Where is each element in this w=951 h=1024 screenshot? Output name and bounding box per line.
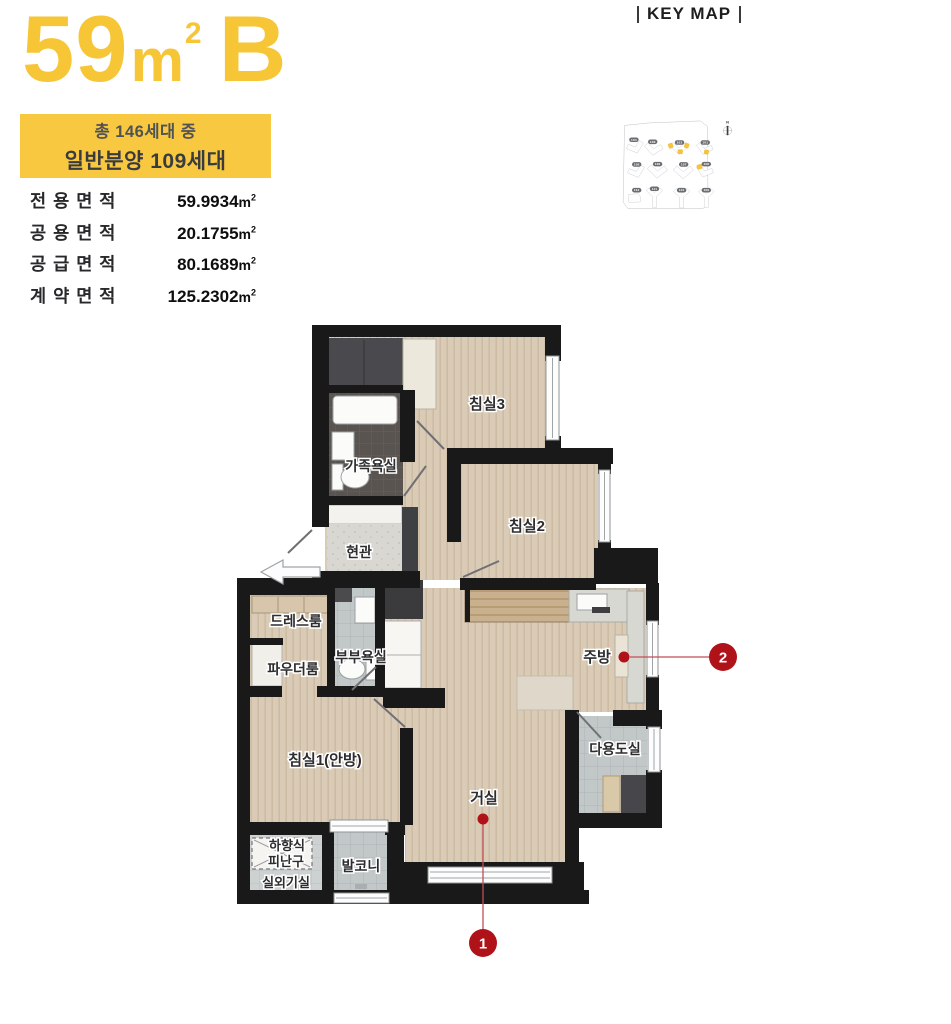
marker-badge-2: 2 [709,643,737,671]
building-label-108: 108 [702,162,711,167]
building-label-103: 103 [648,140,657,145]
area-row-value: 59.9934m2 [177,192,256,212]
keymap-title-text: KEY MAP [647,4,731,24]
svg-text:105: 105 [634,162,640,166]
window [428,867,552,883]
room-label-bedroom1: 침실1(안방) [288,751,362,769]
bathtub [333,396,397,424]
marker-dot-kitchen [619,652,630,663]
svg-text:104: 104 [631,138,637,142]
marker-badge-1: 1 [469,929,497,957]
room-label-living: 거실 [470,790,498,807]
svg-text:2: 2 [719,650,727,667]
page-title: 59m2B [22,2,288,96]
area-table: 전용면적 59.9934m2 공용면적 20.1755m2 공급면적 80.16… [30,188,256,314]
building-label-107: 107 [679,162,688,167]
svg-text:N: N [726,121,729,125]
window [599,470,610,542]
area-unit: m [131,31,185,91]
floor-plan: 침실3 침실2 가족욕실 현관 드레스룸 부부욕실 파우더룸 침실1(안방) 주… [230,318,760,1024]
area-row-value: 80.1689m2 [177,255,256,275]
area-row-value: 20.1755m2 [177,224,256,244]
room-label-hatch-line2: 피난구 [268,854,304,869]
svg-text:112: 112 [634,188,640,192]
compass-icon: N [723,121,732,135]
title-bar-left [637,6,639,23]
cooktop [592,607,610,613]
building-label-102: 102 [675,140,684,145]
entrance-column [402,507,418,573]
window [334,893,389,903]
window [330,820,388,832]
svg-text:110: 110 [679,188,685,192]
svg-text:111: 111 [652,187,657,191]
building-label-110: 110 [677,188,686,193]
svg-text:102: 102 [677,141,683,145]
unit-type-letter: B [219,2,288,96]
utility-dark-unit [621,775,649,813]
area-row-label: 계약면적 [30,283,122,308]
shoe-cabinet [327,505,402,524]
building-label-104: 104 [629,137,638,142]
utility-cabinet [603,776,620,812]
room-label-outdoor-unit: 실외기실 [262,875,310,890]
title-bar-right [739,6,741,23]
building-label-109: 109 [702,188,711,193]
area-row-value: 125.2302m2 [168,287,256,307]
window [546,356,559,440]
table-row: 공급면적 80.1689m2 [30,251,256,283]
svg-text:101: 101 [702,141,708,145]
household-count-badge: 총 146세대 중 일반분양 109세대 [20,114,271,178]
room-label-utility: 다용도실 [589,741,641,757]
svg-text:107: 107 [681,162,687,166]
room-label-bedroom3: 침실3 [469,396,505,413]
table-row: 계약면적 125.2302m2 [30,283,256,315]
badge-total-households: 총 146세대 중 [95,118,197,142]
room-label-master-bath: 부부욕실 [335,649,387,665]
svg-text:109: 109 [703,188,709,192]
building-label-101: 101 [701,140,710,145]
marker-dot-living [478,814,489,825]
window [647,621,658,677]
kitchen-island [465,588,569,622]
table-row: 전용면적 59.9934m2 [30,188,256,220]
room-label-entrance: 현관 [346,544,372,560]
room-label-hatch-line1: 하향식 [269,838,305,853]
room-label-dressroom: 드레스룸 [270,613,322,629]
kitchen-counter-side [627,591,644,703]
building-label-106: 106 [653,162,662,167]
master-bath-sink [355,597,375,623]
area-number: 59 [22,2,129,96]
window [648,727,660,772]
building-label-105: 105 [632,162,641,167]
badge-general-sale: 일반분양 109세대 [65,145,227,175]
area-row-label: 공급면적 [30,251,122,276]
building-label-111: 111 [650,187,659,192]
bathroom-sink [332,432,354,460]
area-row-label: 전용면적 [30,188,122,213]
dining-mat [517,676,573,710]
svg-text:106: 106 [655,162,661,166]
svg-text:1: 1 [479,936,487,953]
room-label-balcony: 발코니 [342,858,381,874]
svg-text:103: 103 [650,140,656,144]
area-unit-superscript: 2 [185,19,203,49]
room-label-family-bath: 가족욕실 [345,458,397,474]
building-label-112: 112 [632,188,641,193]
room-label-kitchen: 주방 [583,648,611,666]
svg-text:108: 108 [703,162,709,166]
dressroom-wardrobe [252,596,330,613]
area-row-label: 공용면적 [30,220,122,245]
room-label-powder-room: 파우더룸 [267,661,319,677]
table-row: 공용면적 20.1755m2 [30,220,256,252]
room-label-bedroom2: 침실2 [509,518,545,535]
keymap: N 104 103 102 101 105 106 107 108 [620,30,951,310]
keymap-title: KEY MAP [637,4,741,24]
